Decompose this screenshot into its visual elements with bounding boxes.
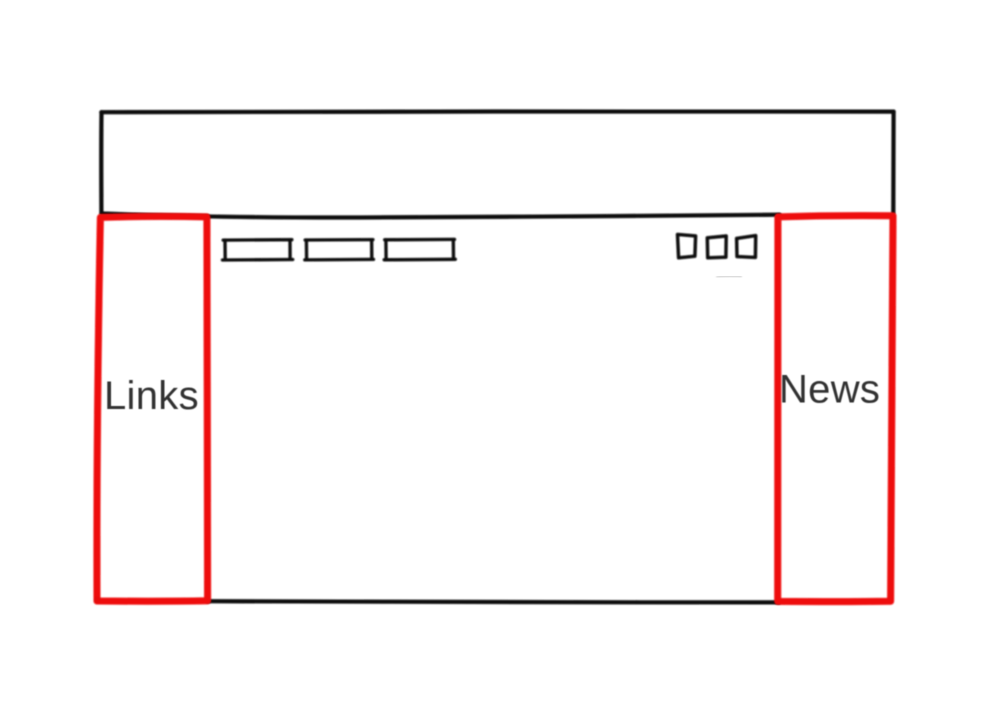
svg-text:News: News (779, 368, 880, 412)
svg-text:Links: Links (104, 374, 199, 418)
